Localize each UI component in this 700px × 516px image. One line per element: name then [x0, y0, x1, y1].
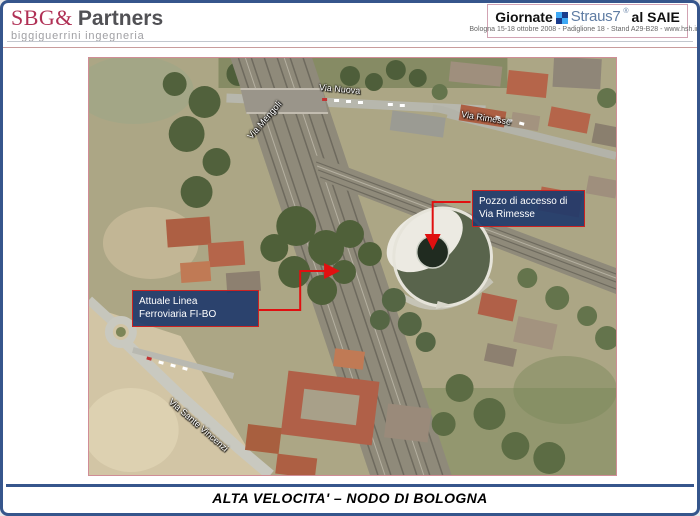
slide: SBG& Partners biggiguerrini ingegneria G…	[0, 0, 700, 516]
straus7-puzzle-icon	[556, 12, 568, 24]
sbg-logo-line: SBG& Partners	[11, 5, 163, 31]
event-badge: Giornate Straus7 ® al SAIE Bologna 15-18…	[487, 4, 688, 38]
callout-linea-ferroviaria: Attuale Linea Ferroviaria FI-BO	[132, 290, 259, 327]
callout-attuale-line1: Attuale Linea	[139, 295, 252, 308]
sbg-partners-logo: SBG& Partners biggiguerrini ingegneria	[11, 5, 163, 42]
header-divider-pink	[3, 47, 697, 48]
footer-divider	[6, 484, 694, 487]
straus7-brand: Straus7	[571, 10, 621, 24]
slide-title: ALTA VELOCITA' – NODO DI BOLOGNA	[3, 490, 697, 506]
aerial-map: Via Nuova Via Mengoli Via Rimesse Via Sa…	[88, 57, 617, 476]
sbg-logo-rest: Partners	[78, 7, 163, 31]
sbg-logo-accent: SBG&	[11, 5, 73, 31]
event-badge-title: Giornate Straus7 ® al SAIE	[495, 10, 680, 24]
callout-attuale-line2: Ferroviaria FI-BO	[139, 308, 252, 321]
callout-pozzo-accesso: Pozzo di accesso di Via Rimesse	[472, 190, 585, 227]
aerial-photo	[89, 58, 616, 475]
header-divider-gray	[7, 41, 693, 42]
callout-pozzo-line1: Pozzo di accesso di	[479, 195, 578, 208]
callout-pozzo-line2: Via Rimesse	[479, 208, 578, 221]
event-word1: Giornate	[495, 10, 553, 24]
event-details: Bologna 15-18 ottobre 2008 - Padiglione …	[469, 26, 700, 33]
event-word2: al SAIE	[632, 10, 680, 24]
registered-mark: ®	[623, 5, 628, 19]
